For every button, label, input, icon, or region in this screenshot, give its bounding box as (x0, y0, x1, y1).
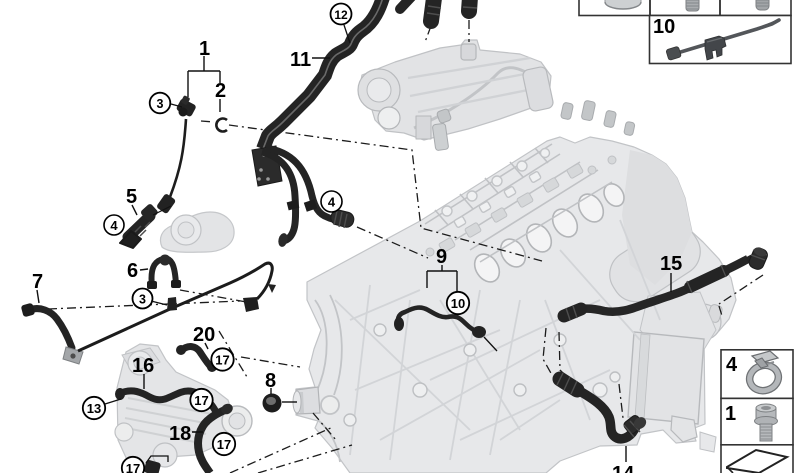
svg-text:17: 17 (194, 393, 208, 408)
svg-text:3: 3 (157, 97, 164, 111)
svg-text:8: 8 (265, 370, 276, 392)
svg-text:20: 20 (193, 324, 215, 346)
svg-text:15: 15 (660, 253, 682, 275)
svg-text:16: 16 (132, 355, 154, 377)
svg-text:13: 13 (87, 401, 101, 416)
svg-text:3: 3 (139, 293, 146, 307)
svg-text:18: 18 (169, 423, 191, 445)
svg-text:14: 14 (612, 463, 635, 473)
svg-text:9: 9 (436, 246, 447, 268)
svg-text:11: 11 (290, 49, 311, 71)
svg-text:17: 17 (215, 353, 229, 368)
svg-text:7: 7 (32, 271, 43, 293)
svg-text:5: 5 (126, 186, 137, 208)
svg-text:4: 4 (726, 354, 738, 376)
svg-text:17: 17 (126, 461, 140, 473)
svg-text:2: 2 (215, 80, 226, 102)
svg-text:1: 1 (725, 403, 736, 425)
svg-text:10: 10 (653, 16, 675, 38)
svg-text:6: 6 (127, 260, 138, 282)
svg-text:4: 4 (328, 195, 336, 210)
svg-text:1: 1 (199, 38, 210, 60)
svg-text:12: 12 (334, 8, 348, 22)
svg-text:17: 17 (217, 437, 231, 452)
svg-text:4: 4 (110, 218, 118, 233)
svg-text:10: 10 (451, 296, 465, 311)
